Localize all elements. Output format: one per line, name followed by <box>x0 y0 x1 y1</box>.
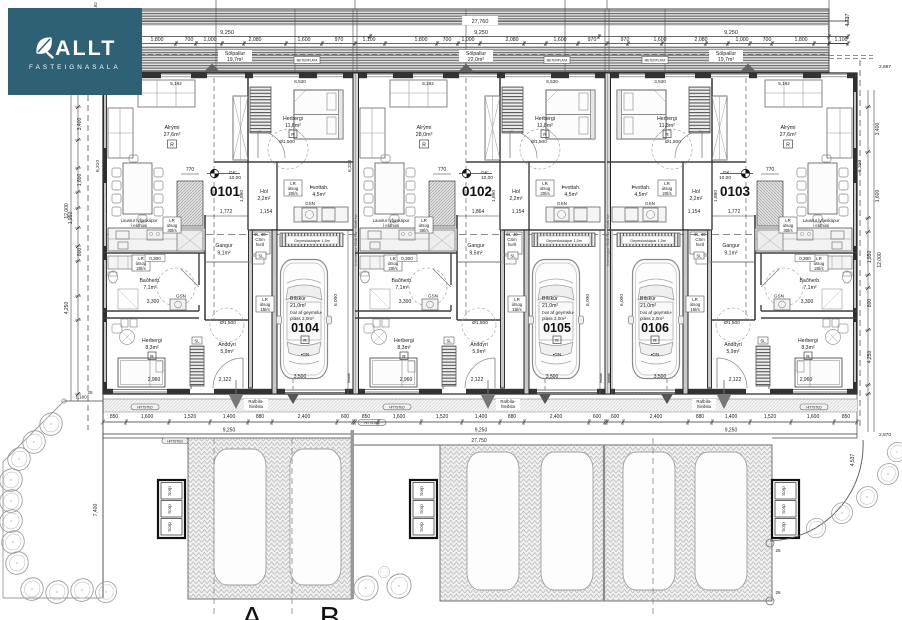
svg-text:0104: 0104 <box>291 321 319 335</box>
svg-text:9,250: 9,250 <box>220 30 234 36</box>
svg-text:SL: SL <box>194 339 200 344</box>
svg-text:1,100: 1,100 <box>835 37 848 43</box>
svg-text:6,310: 6,310 <box>95 160 101 172</box>
svg-text:Ø1,500: Ø1,500 <box>531 139 547 145</box>
svg-text:6,000: 6,000 <box>333 294 339 306</box>
svg-text:METERPLATA: METERPLATA <box>547 59 569 63</box>
svg-text:1,890: 1,890 <box>713 190 719 202</box>
svg-text:20l/s: 20l/s <box>814 266 824 271</box>
svg-text:GSN: GSN <box>428 294 438 299</box>
svg-text:970: 970 <box>588 37 597 43</box>
svg-text:1,154: 1,154 <box>512 209 525 215</box>
svg-text:5,9m²: 5,9m² <box>726 349 740 355</box>
svg-text:Þverveggur 55dB Rw - 53dB t/w: Þverveggur 55dB Rw - 53dB t/w <box>606 214 610 266</box>
svg-text:3,300: 3,300 <box>801 299 814 305</box>
svg-text:12,000: 12,000 <box>877 252 883 268</box>
svg-text:HITTSTED: HITTSTED <box>389 405 405 409</box>
svg-text:3,500: 3,500 <box>546 374 559 380</box>
svg-text:R: R <box>555 338 559 344</box>
svg-text:R: R <box>291 132 295 138</box>
svg-text:2,400: 2,400 <box>650 414 663 420</box>
svg-text:1,600: 1,600 <box>141 414 154 420</box>
svg-text:22,0m²: 22,0m² <box>468 57 484 63</box>
svg-text:8,3m²: 8,3m² <box>145 345 159 351</box>
svg-text:11,8m²: 11,8m² <box>659 123 675 129</box>
svg-text:0106: 0106 <box>641 321 669 335</box>
svg-text:1,600: 1,600 <box>393 414 406 420</box>
svg-text:Geymsluskápar 1,5m: Geymsluskápar 1,5m <box>546 239 582 243</box>
svg-text:25: 25 <box>775 548 781 553</box>
svg-text:SL: SL <box>446 339 452 344</box>
svg-text:1,864: 1,864 <box>472 209 485 215</box>
svg-text:26: 26 <box>775 590 781 595</box>
svg-text:5,192: 5,192 <box>422 81 434 86</box>
svg-text:9,5m²: 9,5m² <box>469 251 483 257</box>
svg-text:Inntak: Inntak <box>347 373 351 383</box>
svg-text:SL: SL <box>696 254 702 259</box>
svg-text:19,7m²: 19,7m² <box>718 57 734 63</box>
svg-text:3,400: 3,400 <box>875 123 881 136</box>
svg-text:2,2m²: 2,2m² <box>509 196 523 202</box>
svg-text:R: R <box>303 338 307 344</box>
svg-text:1,000: 1,000 <box>736 37 749 43</box>
svg-text:11,8m²: 11,8m² <box>285 123 301 129</box>
svg-text:Anddyri: Anddyri <box>724 342 742 348</box>
svg-text:Herbergi: Herbergi <box>283 116 303 122</box>
svg-text:hurð: hurð <box>508 242 517 247</box>
svg-text:B: B <box>320 600 341 620</box>
svg-text:2,887: 2,887 <box>879 64 891 70</box>
svg-text:7,1m²: 7,1m² <box>803 285 817 291</box>
svg-text:1,800: 1,800 <box>795 37 808 43</box>
svg-text:GSN: GSN <box>176 294 186 299</box>
svg-text:METERPLATA: METERPLATA <box>645 59 667 63</box>
svg-text:700: 700 <box>763 37 772 43</box>
svg-text:1,890: 1,890 <box>239 190 245 202</box>
svg-text:7,1m²: 7,1m² <box>143 285 157 291</box>
svg-text:A: A <box>242 600 263 620</box>
svg-text:27,6m²: 27,6m² <box>780 132 797 138</box>
svg-text:GSN: GSN <box>305 201 315 206</box>
svg-text:4,5m²: 4,5m² <box>312 192 326 198</box>
svg-text:R: R <box>653 338 657 344</box>
svg-text:2,080: 2,080 <box>249 37 262 43</box>
svg-text:1,000: 1,000 <box>204 37 217 43</box>
svg-text:Þar af geymslu-: Þar af geymslu- <box>640 310 673 315</box>
svg-text:15l/s: 15l/s <box>512 307 522 312</box>
svg-text:2,122: 2,122 <box>219 377 232 383</box>
svg-text:HITTSTED: HITTSTED <box>167 439 183 443</box>
svg-text:1,000: 1,000 <box>462 37 475 43</box>
svg-text:27,6m²: 27,6m² <box>164 132 181 138</box>
svg-text:20l/s: 20l/s <box>388 266 398 271</box>
svg-text:1,772: 1,772 <box>728 209 741 215</box>
svg-text:1,160: 1,160 <box>75 395 87 400</box>
svg-text:2,080: 2,080 <box>695 37 708 43</box>
svg-text:Gangur: Gangur <box>215 243 233 249</box>
svg-text:Ø1,500: Ø1,500 <box>472 320 488 326</box>
svg-text:2,960: 2,960 <box>800 377 813 383</box>
svg-text:1,600: 1,600 <box>654 37 667 43</box>
svg-text:30l/s: 30l/s <box>167 228 177 233</box>
svg-text:í eldhúsi: í eldhúsi <box>813 223 829 228</box>
svg-text:2,960: 2,960 <box>148 377 161 383</box>
svg-text:3,300: 3,300 <box>399 299 412 305</box>
svg-text:hurð: hurð <box>256 242 265 247</box>
svg-text:1,154: 1,154 <box>688 209 701 215</box>
svg-text:850: 850 <box>842 414 851 420</box>
svg-text:í eldhúsi: í eldhúsi <box>383 223 399 228</box>
svg-text:2,870: 2,870 <box>879 432 891 438</box>
svg-text:700: 700 <box>443 37 452 43</box>
svg-text:R: R <box>806 354 810 360</box>
svg-text:880: 880 <box>696 414 705 420</box>
svg-text:5,9m²: 5,9m² <box>472 349 486 355</box>
svg-text:9,1m²: 9,1m² <box>724 251 738 257</box>
svg-text:ALLT: ALLT <box>55 36 116 60</box>
svg-text:Alrými: Alrými <box>417 125 432 131</box>
svg-text:5,192: 5,192 <box>778 81 790 86</box>
svg-text:Geymsluskápar 1,5m: Geymsluskápar 1,5m <box>294 239 330 243</box>
svg-text:R: R <box>402 354 406 360</box>
svg-text:4,737: 4,737 <box>845 13 851 26</box>
svg-text:Herbergi: Herbergi <box>535 116 555 122</box>
svg-text:1,800: 1,800 <box>415 37 428 43</box>
svg-text:▪GN: ▪GN <box>553 352 562 357</box>
svg-text:9,250: 9,250 <box>725 428 738 434</box>
svg-text:Bílskúr: Bílskúr <box>290 296 306 302</box>
svg-text:1,100: 1,100 <box>363 37 376 43</box>
svg-text:7,1m²: 7,1m² <box>395 285 409 291</box>
svg-text:SL: SL <box>760 339 766 344</box>
svg-text:600: 600 <box>593 414 602 420</box>
svg-text:1,154: 1,154 <box>260 209 273 215</box>
svg-text:1,890: 1,890 <box>491 190 497 202</box>
svg-text:Herbergi: Herbergi <box>798 338 818 344</box>
svg-text:Inntak: Inntak <box>607 373 611 383</box>
svg-text:Anddyri: Anddyri <box>218 342 236 348</box>
svg-text:600: 600 <box>611 414 620 420</box>
svg-text:20l/s: 20l/s <box>136 266 146 271</box>
svg-text:850: 850 <box>110 414 119 420</box>
svg-text:Anddyri: Anddyri <box>470 342 488 348</box>
svg-text:15l/s: 15l/s <box>690 307 700 312</box>
svg-text:12,000: 12,000 <box>64 203 70 219</box>
svg-text:METERPLATA: METERPLATA <box>297 59 319 63</box>
svg-text:1,400: 1,400 <box>475 414 488 420</box>
svg-text:Inntak: Inntak <box>599 373 603 383</box>
svg-text:9,1m²: 9,1m² <box>217 251 231 257</box>
svg-text:Þar af geymslu-: Þar af geymslu- <box>290 310 323 315</box>
svg-text:Bílskúr: Bílskúr <box>640 296 656 302</box>
svg-text:8,3m²: 8,3m² <box>801 345 815 351</box>
svg-text:HITTSTED: HITTSTED <box>137 405 153 409</box>
svg-text:2,2m²: 2,2m² <box>257 196 271 202</box>
svg-text:hleðsla: hleðsla <box>249 404 263 409</box>
svg-text:Hol: Hol <box>260 189 268 195</box>
svg-text:0,300: 0,300 <box>401 256 413 261</box>
svg-text:Þverveggur 55dB Rw - 53dB t/w: Þverveggur 55dB Rw - 53dB t/w <box>354 214 358 266</box>
svg-text:Bílskúr: Bílskúr <box>542 296 558 302</box>
svg-text:R: R <box>665 132 669 138</box>
svg-text:9,250: 9,250 <box>724 30 738 36</box>
svg-text:Herbergi: Herbergi <box>394 338 414 344</box>
svg-text:1,400: 1,400 <box>725 414 738 420</box>
svg-text:HITTSTED: HITTSTED <box>806 405 822 409</box>
svg-text:Herbergi: Herbergi <box>142 338 162 344</box>
svg-text:R: R <box>543 132 547 138</box>
svg-text:6,310: 6,310 <box>347 160 353 172</box>
svg-text:Alrými: Alrými <box>781 125 796 131</box>
svg-text:8,530: 8,530 <box>546 79 558 84</box>
svg-text:í eldhúsi: í eldhúsi <box>131 223 147 228</box>
svg-text:29: 29 <box>88 390 93 395</box>
svg-text:SL: SL <box>510 254 516 259</box>
svg-text:28,0m²: 28,0m² <box>416 132 433 138</box>
svg-text:GSN: GSN <box>774 294 784 299</box>
svg-text:2,400: 2,400 <box>298 414 311 420</box>
svg-text:880: 880 <box>508 414 517 420</box>
svg-text:1,600: 1,600 <box>807 414 820 420</box>
svg-text:15l/s: 15l/s <box>260 307 270 312</box>
svg-text:SL: SL <box>258 254 264 259</box>
svg-text:▪GN: ▪GN <box>651 352 660 357</box>
svg-text:GSN: GSN <box>557 201 567 206</box>
svg-text:Alrými: Alrými <box>165 125 180 131</box>
svg-text:Þvottah.: Þvottah. <box>561 185 580 191</box>
svg-text:R: R <box>422 143 426 149</box>
svg-text:5,9m²: 5,9m² <box>220 349 234 355</box>
svg-text:27,760: 27,760 <box>472 19 489 25</box>
svg-text:Ø1,500: Ø1,500 <box>220 320 236 326</box>
svg-text:880: 880 <box>256 414 265 420</box>
svg-text:30l/s: 30l/s <box>783 228 793 233</box>
svg-text:970: 970 <box>335 37 344 43</box>
svg-text:3,300: 3,300 <box>147 299 160 305</box>
svg-text:6,000: 6,000 <box>585 294 591 306</box>
svg-text:9,250: 9,250 <box>223 428 236 434</box>
svg-text:Gangur: Gangur <box>722 243 740 249</box>
svg-text:3,500: 3,500 <box>294 374 307 380</box>
svg-text:20l/s: 20l/s <box>662 191 672 196</box>
svg-text:Gangur: Gangur <box>467 243 485 249</box>
svg-text:▪GN: ▪GN <box>301 352 310 357</box>
svg-text:4,5m²: 4,5m² <box>634 192 648 198</box>
svg-text:hleðsla: hleðsla <box>501 404 515 409</box>
svg-text:1,600: 1,600 <box>875 190 881 203</box>
svg-text:1,600: 1,600 <box>554 37 567 43</box>
svg-text:4,537: 4,537 <box>850 454 856 467</box>
svg-text:770: 770 <box>186 167 195 173</box>
svg-text:850: 850 <box>362 414 371 420</box>
svg-text:1,520: 1,520 <box>436 414 449 420</box>
svg-text:2,122: 2,122 <box>471 377 484 383</box>
svg-text:Baðherb.: Baðherb. <box>139 277 160 284</box>
svg-text:21,0m²: 21,0m² <box>290 303 306 309</box>
svg-text:3,500: 3,500 <box>654 374 667 380</box>
svg-text:30l/s: 30l/s <box>419 228 429 233</box>
svg-text:Herbergi: Herbergi <box>657 116 677 122</box>
svg-text:Ø1,500: Ø1,500 <box>279 139 295 145</box>
svg-text:1,520: 1,520 <box>184 414 197 420</box>
svg-text:770: 770 <box>766 167 775 173</box>
svg-text:27,750: 27,750 <box>471 438 487 444</box>
svg-text:0101: 0101 <box>210 184 241 199</box>
svg-text:0102: 0102 <box>462 184 492 199</box>
svg-text:8,3m²: 8,3m² <box>397 345 411 351</box>
svg-text:0,300: 0,300 <box>799 256 811 261</box>
svg-text:GSN: GSN <box>645 201 655 206</box>
svg-text:Geymsluskápar 1,5m: Geymsluskápar 1,5m <box>630 239 666 243</box>
svg-text:770: 770 <box>438 167 447 173</box>
svg-text:Þvottah.: Þvottah. <box>309 185 328 191</box>
svg-text:R: R <box>786 143 790 149</box>
svg-text:R: R <box>170 143 174 149</box>
svg-text:10,00: 10,00 <box>229 175 241 181</box>
svg-text:hleðsla: hleðsla <box>697 404 711 409</box>
svg-text:600: 600 <box>341 414 350 420</box>
svg-text:7,400: 7,400 <box>93 504 99 517</box>
svg-text:2,2m²: 2,2m² <box>689 196 703 202</box>
svg-text:8,530: 8,530 <box>294 79 306 84</box>
svg-text:21,0m²: 21,0m² <box>542 303 558 309</box>
svg-text:hurð: hurð <box>696 242 705 247</box>
svg-text:Þvottah.: Þvottah. <box>631 185 650 191</box>
svg-text:20l/s: 20l/s <box>288 191 298 196</box>
svg-text:9,250: 9,250 <box>474 30 488 36</box>
svg-text:Baðherb.: Baðherb. <box>391 277 412 284</box>
svg-text:0103: 0103 <box>720 184 751 199</box>
svg-text:5,192: 5,192 <box>170 81 182 86</box>
svg-text:1,772: 1,772 <box>220 209 233 215</box>
svg-text:20l/s: 20l/s <box>540 191 550 196</box>
svg-text:Ø1,500: Ø1,500 <box>724 320 740 326</box>
svg-text:4,5m²: 4,5m² <box>564 192 578 198</box>
svg-text:0,300: 0,300 <box>149 256 161 261</box>
svg-text:Ø1,500: Ø1,500 <box>665 139 681 145</box>
svg-text:2,080: 2,080 <box>506 37 519 43</box>
svg-text:11,8m²: 11,8m² <box>537 123 553 129</box>
svg-text:700: 700 <box>185 37 194 43</box>
svg-text:0105: 0105 <box>543 321 571 335</box>
svg-text:19,7m²: 19,7m² <box>227 57 243 63</box>
svg-text:2,960: 2,960 <box>400 377 413 383</box>
svg-text:1,800: 1,800 <box>151 37 164 43</box>
svg-text:Þar af geymslu-: Þar af geymslu- <box>542 310 575 315</box>
svg-text:10,00: 10,00 <box>719 175 731 181</box>
svg-text:10,00: 10,00 <box>481 175 493 181</box>
svg-text:4,250: 4,250 <box>64 302 70 315</box>
svg-text:R: R <box>150 354 154 360</box>
svg-text:3,530: 3,530 <box>654 79 666 84</box>
svg-text:Baðherb.: Baðherb. <box>799 277 820 284</box>
svg-text:21,0m²: 21,0m² <box>640 303 656 309</box>
svg-text:1,600: 1,600 <box>298 37 311 43</box>
svg-text:Hol: Hol <box>692 189 700 195</box>
svg-text:6,000: 6,000 <box>619 294 625 306</box>
svg-text:9,250: 9,250 <box>475 428 488 434</box>
svg-text:2,122: 2,122 <box>729 377 742 383</box>
svg-text:1,400: 1,400 <box>223 414 236 420</box>
svg-text:FASTEIGNASALA: FASTEIGNASALA <box>29 64 121 71</box>
svg-text:Hol: Hol <box>512 189 520 195</box>
svg-text:2,400: 2,400 <box>550 414 563 420</box>
svg-text:1,520: 1,520 <box>764 414 777 420</box>
